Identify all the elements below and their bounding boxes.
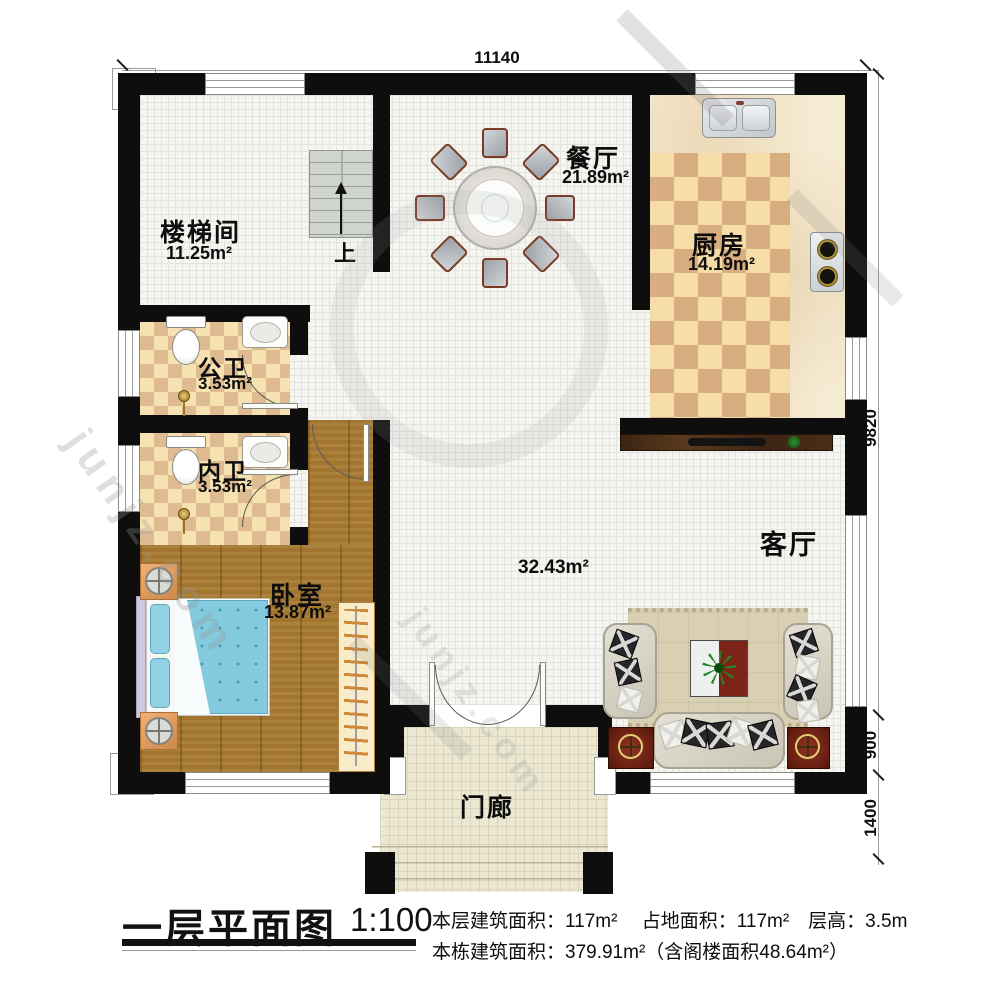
bed-pillow xyxy=(150,658,170,708)
entry-door-leaf-right xyxy=(540,662,546,726)
title-underline-thick xyxy=(122,939,416,946)
tv xyxy=(688,438,766,446)
title-underline-thin xyxy=(122,950,416,951)
wall-left-b xyxy=(118,397,140,445)
dimension-line-top xyxy=(122,70,879,71)
dimension-right-lower: 1400 xyxy=(861,788,881,848)
wall-left-a xyxy=(118,73,140,330)
floor-drain-stem xyxy=(183,402,185,416)
dining-chair xyxy=(545,195,575,221)
kitchen-floor xyxy=(650,153,790,418)
area-kitchen: 14.19m² xyxy=(688,254,755,275)
stats-line-2: 本栋建筑面积：379.91m²（含阁楼面积48.64m²） xyxy=(432,937,848,964)
public-bath-door-leaf xyxy=(242,403,298,409)
dimension-right-upper: 9820 xyxy=(861,398,881,458)
stairs-up-arrow-head xyxy=(335,182,347,194)
window-bedroom-south xyxy=(185,772,330,794)
porch-column-left xyxy=(365,852,395,894)
window-kitchen-east xyxy=(845,337,867,400)
bath-sink xyxy=(242,436,288,468)
dimension-top-value: 11140 xyxy=(452,48,542,68)
area-inner-bath: 3.53m² xyxy=(198,477,252,497)
sink-basin xyxy=(250,322,281,343)
stairs-up-arrow-shaft xyxy=(340,192,342,234)
toilet-bowl xyxy=(172,329,200,365)
sink-bowl-right xyxy=(742,105,770,131)
dining-chair xyxy=(415,195,445,221)
window-living-east xyxy=(845,515,867,707)
bed xyxy=(136,596,272,718)
floor-drain xyxy=(178,390,190,402)
wall-porch-pier-left xyxy=(390,727,404,757)
inner-bath-door-leaf xyxy=(242,469,298,475)
bed-headboard xyxy=(136,596,146,718)
table-lamp xyxy=(795,734,820,759)
window-public-bath xyxy=(118,330,140,397)
wardrobe xyxy=(338,602,375,772)
wall-bedroom-east xyxy=(373,420,390,794)
wall-porch-right xyxy=(545,705,612,727)
wall-bottom-living-b xyxy=(795,772,867,794)
wall-bath-east-c xyxy=(290,527,308,545)
porch-column-right xyxy=(583,852,613,894)
wall-porch-left xyxy=(390,705,430,727)
plan-scale: 1:100 xyxy=(350,901,433,939)
wall-bottom-living-a xyxy=(612,772,650,794)
wall-top-b xyxy=(305,73,695,95)
wardrobe-hangers xyxy=(344,609,368,764)
label-living: 客厅 xyxy=(760,523,818,562)
bed-pillow xyxy=(150,604,170,654)
wall-bath-divider xyxy=(140,415,308,433)
area-public-bath: 3.53m² xyxy=(198,374,252,394)
dining-chair xyxy=(482,128,508,158)
floor-plan-page: 上 xyxy=(0,0,1000,990)
nightstand-lamp xyxy=(145,717,173,745)
wall-right-a xyxy=(845,73,867,337)
dimension-right-mid: 900 xyxy=(861,715,881,775)
area-stairwell: 11.25m² xyxy=(166,243,232,264)
nightstand-lamp xyxy=(145,567,173,595)
sofa-pillow xyxy=(796,699,821,724)
table-lamp xyxy=(618,734,643,759)
toilet-tank xyxy=(166,436,206,448)
sink-faucet xyxy=(736,101,744,105)
wall-kitchen-south xyxy=(620,418,867,435)
floor-drain xyxy=(178,508,190,520)
wall-bottom-bedroom-a xyxy=(118,772,185,794)
window-stairwell xyxy=(205,73,305,95)
wall-bath-east-a xyxy=(290,305,308,355)
window-kitchen-north xyxy=(695,73,795,95)
stats-line-1: 本层建筑面积：117m² 占地面积：117m² 层高：3.5m xyxy=(432,906,907,933)
stairs-up-label: 上 xyxy=(334,236,358,268)
stove-burner xyxy=(817,239,838,260)
toilet-bowl xyxy=(172,449,200,485)
dining-table-center xyxy=(481,194,509,222)
entry-door-leaf-left xyxy=(429,662,435,726)
area-dining: 21.89m² xyxy=(562,167,629,188)
area-bedroom: 13.87m² xyxy=(264,602,331,623)
kitchen-sink xyxy=(702,98,776,138)
kitchen-stove xyxy=(810,232,844,292)
window-living-south xyxy=(650,772,795,794)
label-porch: 门廊 xyxy=(460,788,514,824)
window-inner-bath xyxy=(118,445,140,512)
area-living: 32.43m² xyxy=(518,557,589,579)
porch-steps xyxy=(372,842,608,892)
floor-drain-stem xyxy=(183,520,185,534)
toilet-tank xyxy=(166,316,206,328)
sink-basin xyxy=(250,442,281,463)
bath-sink xyxy=(242,316,288,348)
dining-chair xyxy=(482,258,508,288)
stove-burner xyxy=(817,266,838,287)
bedroom-door-leaf xyxy=(363,424,369,482)
cabinet-plant xyxy=(788,436,800,448)
sofa-pillow xyxy=(614,658,642,686)
coffee-table-plant-center xyxy=(714,663,724,673)
sink-bowl-left xyxy=(709,105,737,131)
wall-stairwell-dining xyxy=(373,95,390,272)
wall-kitchen-west xyxy=(632,95,650,310)
